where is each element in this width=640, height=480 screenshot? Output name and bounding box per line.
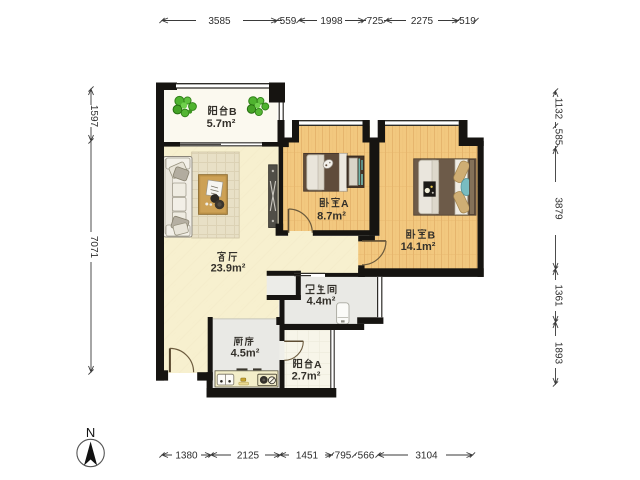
svg-text:1361: 1361 [553,284,564,307]
svg-text:1998: 1998 [320,16,343,27]
svg-text:4.4m²: 4.4m² [307,296,336,308]
svg-text:2.7m²: 2.7m² [292,371,321,383]
svg-text:1451: 1451 [296,451,319,462]
svg-text:3585: 3585 [208,16,231,27]
svg-text:1132: 1132 [553,98,564,120]
svg-text:1597: 1597 [88,105,99,128]
svg-text:8.7m²: 8.7m² [317,211,346,223]
svg-text:519: 519 [459,16,476,27]
svg-text:14.1m²: 14.1m² [401,241,436,253]
svg-text:2275: 2275 [411,16,434,27]
svg-text:B: B [428,230,436,242]
svg-text:1380: 1380 [175,451,198,462]
svg-text:566: 566 [358,451,375,462]
svg-text:2125: 2125 [237,451,260,462]
svg-text:559: 559 [280,16,297,27]
svg-text:5.7m²: 5.7m² [207,118,236,130]
svg-text:1893: 1893 [553,342,564,365]
svg-text:3879: 3879 [553,197,564,220]
svg-text:N: N [86,425,95,440]
svg-text:7071: 7071 [88,236,99,259]
svg-text:3104: 3104 [415,451,438,462]
svg-text:725: 725 [367,16,384,27]
svg-text:A: A [341,198,349,210]
svg-text:B: B [229,106,237,118]
svg-text:A: A [314,359,322,371]
svg-text:795: 795 [335,451,352,462]
svg-text:4.5m²: 4.5m² [231,348,260,360]
svg-text:585: 585 [553,129,564,146]
svg-text:23.9m²: 23.9m² [211,263,246,275]
